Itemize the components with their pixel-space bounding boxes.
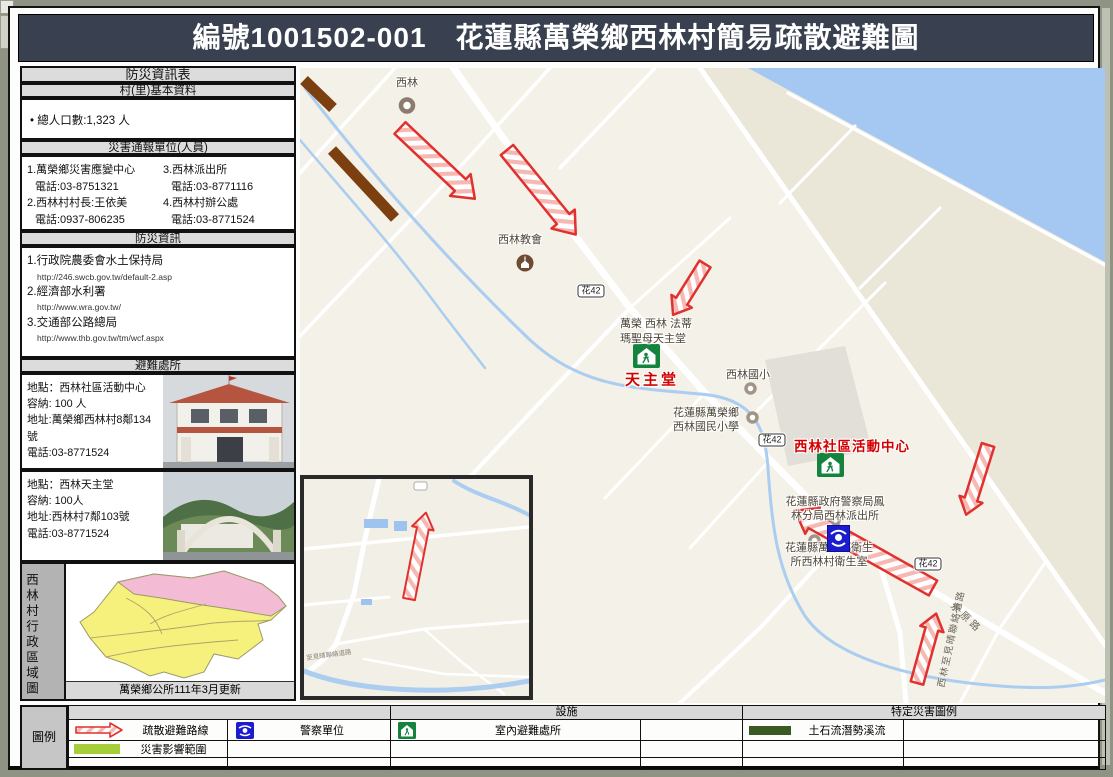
contacts-header: 災害通報單位(人員) <box>20 140 296 155</box>
photo-cathedral-gate <box>163 472 294 560</box>
shelter-capacity: 容納: 100人 <box>27 493 161 509</box>
admin-map-section: 西林村行政區域圖 萬榮鄉公所111年3月更新 <box>20 562 296 701</box>
link-name: 3.交通部公路總局 <box>27 316 294 332</box>
indoor-shelter-legend-icon <box>398 722 416 739</box>
legend-header-blank <box>69 706 391 720</box>
contacts-box: 1.萬榮鄉災害應變中心 電話:03-8751321 2.西林村村長:王依美 電話… <box>20 155 296 231</box>
shelter-info: 地點：西林社區活動中心 容納: 100 人 地址:萬榮鄉西林村8鄰134號 電話… <box>22 375 163 468</box>
prevention-info-header: 防災資訊 <box>20 231 296 246</box>
legend-shelter-label: 室內避難處所 <box>416 722 640 738</box>
road-shield-hwy42: 花42 <box>758 434 785 447</box>
map-inset: 至見晴聯絡道路 <box>300 475 533 700</box>
link-url: http://www.thb.gov.tw/tm/wcf.aspx <box>27 331 294 346</box>
church-icon <box>516 254 534 272</box>
admin-map-caption: 萬榮鄉公所111年3月更新 <box>66 681 294 699</box>
inset-map-graphic <box>304 479 529 696</box>
shelter-card-community-center: 地點：西林社區活動中心 容納: 100 人 地址:萬榮鄉西林村8鄰134號 電話… <box>20 373 296 470</box>
map-label-cathedral-1: 萬榮 西林 法蒂 <box>620 315 692 331</box>
basic-data-header: 村(里)基本資料 <box>20 83 296 98</box>
shelter-phone: 電話:03-8771524 <box>27 445 161 461</box>
link-name: 2.經濟部水利署 <box>27 285 294 301</box>
police-unit-icon <box>236 722 254 739</box>
road-shield-hwy42: 花42 <box>577 285 604 298</box>
shelters-header: 避難處所 <box>20 358 296 373</box>
police-station-icon <box>827 525 850 552</box>
shelter-photo-gate <box>163 472 294 560</box>
impact-area-swatch <box>74 744 120 754</box>
contact-name: 3.西林派出所 <box>158 162 294 179</box>
population-value: • 總人口數:1,323 人 <box>30 115 130 127</box>
evacuation-route-arrow-icon <box>74 721 124 739</box>
school-poi-icon <box>746 411 759 424</box>
population-box: • 總人口數:1,323 人 <box>20 98 296 140</box>
contact-phone: 電話:03-8771524 <box>158 212 294 229</box>
village-poi-icon <box>398 97 416 114</box>
legend-header-hazard: 特定災害圖例 <box>743 706 1106 720</box>
admin-map-vertical-label: 西林村行政區域圖 <box>22 564 66 699</box>
shelter-card-cathedral: 地點：西林天主堂 容納: 100人 地址:西林村7鄰103號 電話:03-877… <box>20 470 296 562</box>
legend-title: 圖例 <box>20 705 68 770</box>
admin-map: 萬榮鄉公所111年3月更新 <box>66 564 294 699</box>
document-sheet: 編號1001502-001 花蓮縣萬榮鄉西林村簡易疏散避難圖 防災資訊表 村(里… <box>8 6 1100 770</box>
school-poi-icon <box>744 382 757 395</box>
legend-debris-label: 土石流潛勢溪流 <box>791 722 903 738</box>
info-sidebar: 防災資訊表 村(里)基本資料 • 總人口數:1,323 人 災害通報單位(人員)… <box>20 66 296 701</box>
shelter-location: 地點：西林天主堂 <box>27 477 161 493</box>
admin-map-graphic <box>66 564 290 681</box>
contact-name: 4.西林村辦公處 <box>158 195 294 212</box>
legend-impact-label: 災害影響範圍 <box>120 741 227 757</box>
link-name: 1.行政院農委會水土保持局 <box>27 254 294 270</box>
shelter-photo-building <box>163 375 294 468</box>
road-shield-hwy42: 花42 <box>914 558 941 571</box>
map-label-health-2: 所西林村衛生室 <box>791 553 868 569</box>
info-table-header: 防災資訊表 <box>20 66 296 83</box>
legend-table: 設施 特定災害圖例 <box>68 705 1106 770</box>
link-url: http://www.wra.gov.tw/ <box>27 300 294 315</box>
shelter-phone: 電話:03-8771524 <box>27 526 161 542</box>
debris-flow-swatch <box>749 726 791 735</box>
contact-name: 1.萬榮鄉災害應變中心 <box>22 162 158 179</box>
contact-phone: 電話:03-8771116 <box>158 179 294 196</box>
shelter-info: 地點：西林天主堂 容納: 100人 地址:西林村7鄰103號 電話:03-877… <box>22 472 163 560</box>
evacuation-map: 西林 西林教會 萬榮 西林 法蒂 瑪聖母天主堂 天主堂 西林國小 花蓮縣萬榮鄉 … <box>300 68 1105 703</box>
photo-community-center <box>163 375 294 468</box>
map-label-school-2: 西林國民小學 <box>673 418 739 434</box>
map-label-police-2: 林分局西林派出所 <box>791 507 879 523</box>
map-label-school-short: 西林國小 <box>726 366 770 382</box>
shelter-location: 地點：西林社區活動中心 <box>27 380 161 396</box>
shelter-capacity: 容納: 100 人 <box>27 396 161 412</box>
legend: 圖例 設施 特定災害圖例 <box>20 705 1106 770</box>
inset-road-shield <box>414 482 427 490</box>
map-label-cathedral-2: 瑪聖母天主堂 <box>620 330 686 346</box>
legend-route-label: 疏散避難路線 <box>124 722 227 738</box>
legend-police-label: 警察單位 <box>254 722 390 738</box>
contacts-column-left: 1.萬榮鄉災害應變中心 電話:03-8751321 2.西林村村長:王依美 電話… <box>22 162 158 229</box>
map-label-village: 西林 <box>396 74 418 90</box>
contact-phone: 電話:03-8751321 <box>22 179 158 196</box>
indoor-shelter-icon <box>633 344 660 368</box>
map-label-community-red: 西林社區活動中心 <box>794 435 910 455</box>
page-title: 編號1001502-001 花蓮縣萬榮鄉西林村簡易疏散避難圖 <box>18 14 1094 62</box>
map-label-church: 西林教會 <box>498 231 542 247</box>
contact-phone: 電話:0937-806235 <box>22 212 158 229</box>
links-box: 1.行政院農委會水土保持局 http://246.swcb.gov.tw/def… <box>20 246 296 358</box>
legend-header-facilities: 設施 <box>391 706 743 720</box>
link-url: http://246.swcb.gov.tw/default-2.asp <box>27 270 294 285</box>
contacts-column-right: 3.西林派出所 電話:03-8771116 4.西林村辦公處 電話:03-877… <box>158 162 294 229</box>
shelter-address: 地址:西林村7鄰103號 <box>27 509 161 525</box>
indoor-shelter-icon <box>817 453 844 477</box>
contact-name: 2.西林村村長:王依美 <box>22 195 158 212</box>
map-label-cathedral-red: 天主堂 <box>625 369 679 390</box>
shelter-address: 地址:萬榮鄉西林村8鄰134號 <box>27 412 161 444</box>
